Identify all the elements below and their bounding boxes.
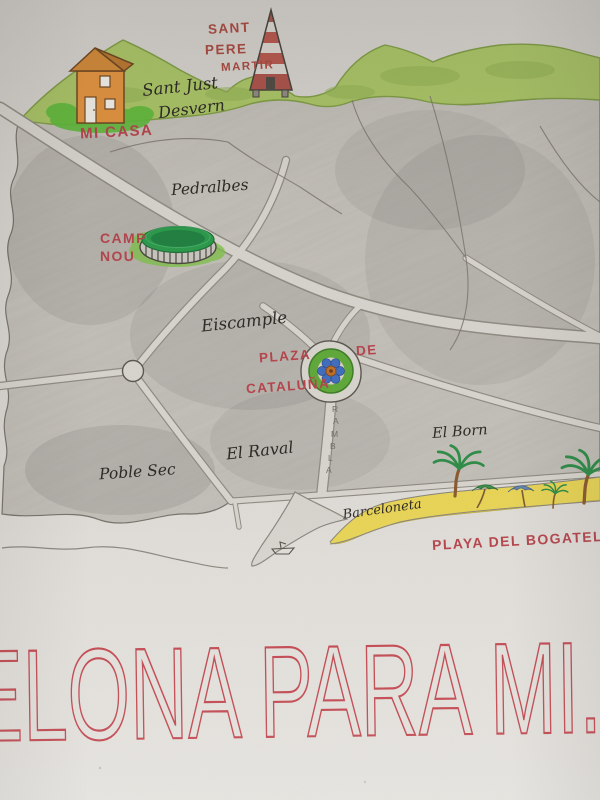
barcelona-hand-drawn-map: R A M B L A [0, 0, 600, 800]
photo-lighting-h [0, 0, 600, 800]
photo-of-hand-drawn-map: R A M B L A [0, 0, 600, 800]
